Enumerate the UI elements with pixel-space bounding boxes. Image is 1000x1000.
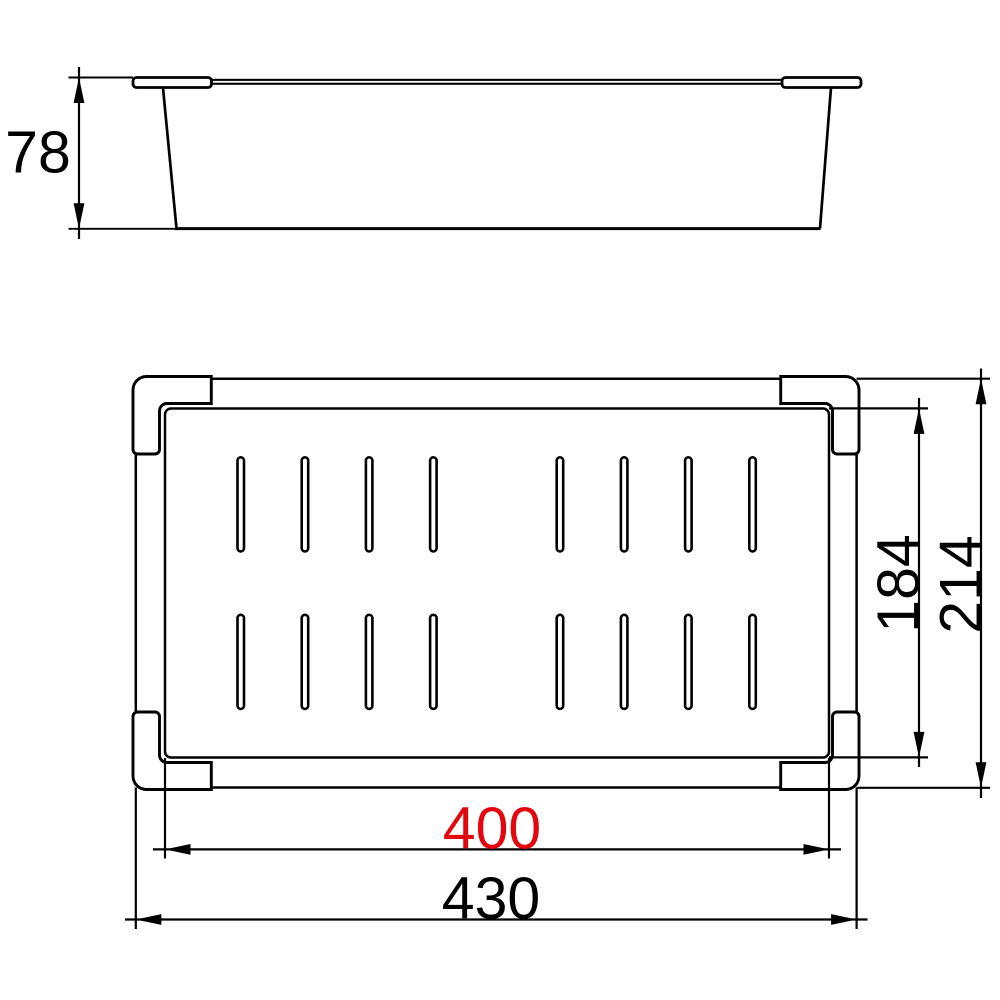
svg-text:214: 214 [928, 535, 994, 633]
svg-text:430: 430 [442, 866, 540, 932]
svg-text:400: 400 [443, 796, 541, 862]
svg-text:184: 184 [866, 534, 932, 632]
svg-text:78: 78 [5, 120, 71, 186]
